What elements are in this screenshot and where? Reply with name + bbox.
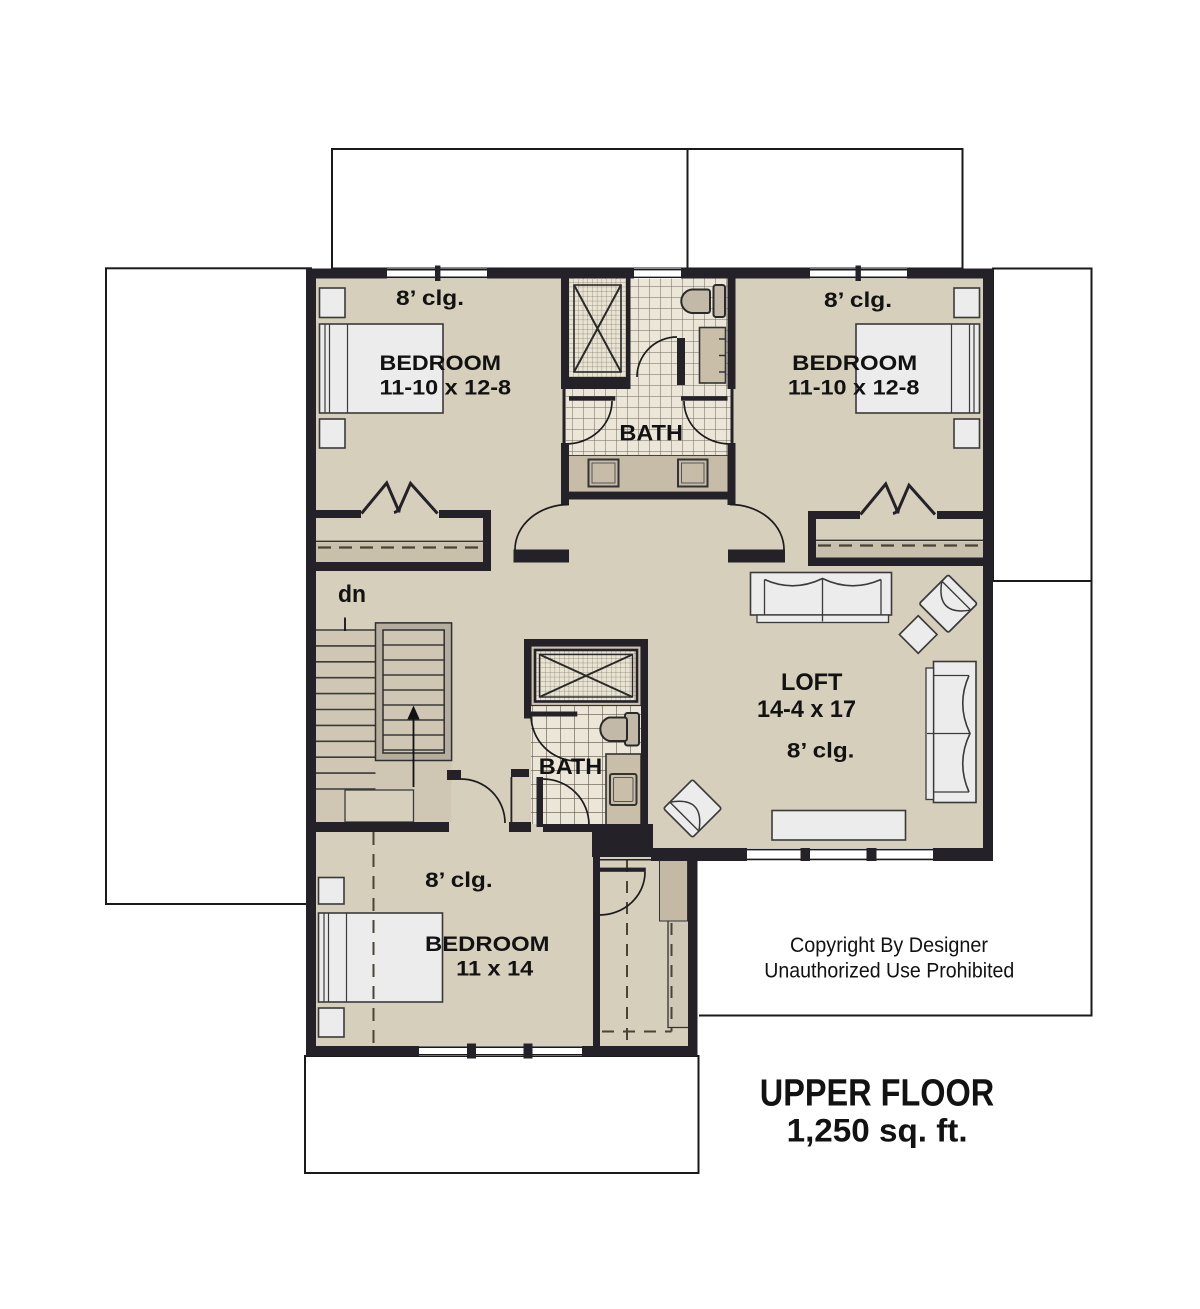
svg-text:11-10 x 12-8: 11-10 x 12-8 xyxy=(380,377,512,400)
svg-text:BEDROOM: BEDROOM xyxy=(380,352,502,375)
svg-text:Copyright By Designer: Copyright By Designer xyxy=(790,934,988,957)
svg-text:BATH: BATH xyxy=(539,754,603,779)
svg-text:BEDROOM: BEDROOM xyxy=(792,352,917,375)
svg-text:11-10 x 12-8: 11-10 x 12-8 xyxy=(788,377,920,400)
svg-text:BATH: BATH xyxy=(619,421,683,446)
svg-text:BEDROOM: BEDROOM xyxy=(425,933,550,956)
svg-text:11 x 14: 11 x 14 xyxy=(456,958,533,981)
svg-text:8’ clg.: 8’ clg. xyxy=(396,287,464,310)
svg-text:14-4 x 17: 14-4 x 17 xyxy=(757,696,856,723)
svg-text:1,250 sq. ft.: 1,250 sq. ft. xyxy=(787,1113,968,1149)
svg-text:8’ clg.: 8’ clg. xyxy=(425,869,493,892)
svg-text:LOFT: LOFT xyxy=(781,669,843,696)
svg-text:8’ clg.: 8’ clg. xyxy=(787,740,855,763)
svg-text:Unauthorized Use Prohibited: Unauthorized Use Prohibited xyxy=(764,960,1014,983)
svg-text:UPPER FLOOR: UPPER FLOOR xyxy=(760,1073,995,1115)
svg-text:8’ clg.: 8’ clg. xyxy=(824,289,892,312)
svg-text:dn: dn xyxy=(338,581,366,608)
